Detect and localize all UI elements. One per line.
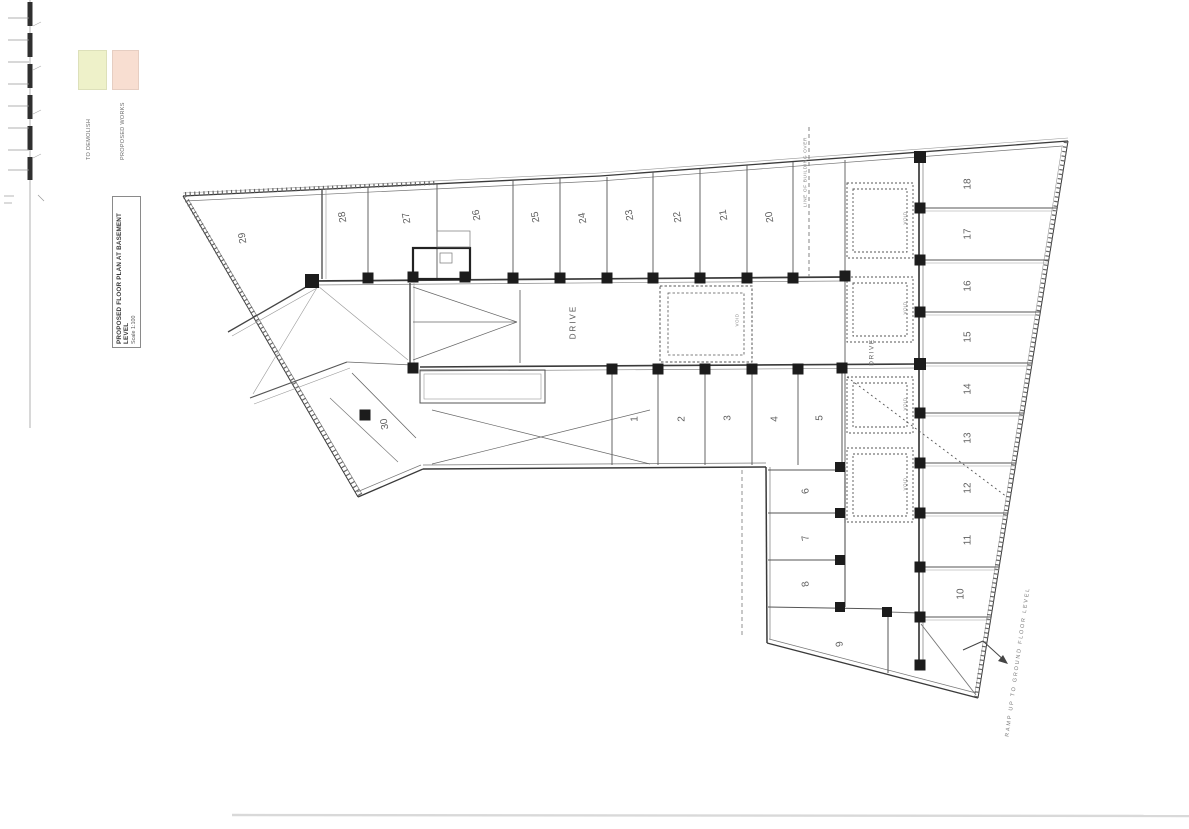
plan-rect <box>853 454 907 516</box>
column <box>840 271 851 282</box>
column <box>648 273 659 284</box>
stall-number-18: 18 <box>963 178 974 190</box>
annotation-text: VOID <box>903 477 908 490</box>
plan-line <box>33 22 41 26</box>
plan-rect <box>437 231 470 247</box>
plan-rect <box>853 189 907 252</box>
stall-number-17: 17 <box>963 228 974 240</box>
stall-number-12: 12 <box>963 482 974 494</box>
plan-line <box>232 815 1189 816</box>
plan-rect <box>853 383 907 427</box>
annotation-text: DRIVE <box>869 338 876 365</box>
column <box>915 660 926 671</box>
stall-number-2: 2 <box>677 416 688 422</box>
plan-line <box>413 287 517 322</box>
plan-line <box>423 467 766 469</box>
plan-line <box>33 110 41 114</box>
stall-number-8: 8 <box>800 580 812 588</box>
column <box>653 364 664 375</box>
column <box>793 364 804 375</box>
column <box>915 562 926 573</box>
plan-rect <box>853 283 907 336</box>
column <box>508 273 519 284</box>
plan-line <box>768 607 888 609</box>
column <box>882 607 892 617</box>
column <box>460 272 471 283</box>
stall-number-28: 28 <box>337 210 350 223</box>
plan-line <box>33 154 41 158</box>
annotation-text: VOID <box>903 301 908 314</box>
drawing-title: PROPOSED FLOOR PLAN AT BASEMENT LEVEL <box>116 198 130 344</box>
plan-line <box>228 283 313 332</box>
stall-number-5: 5 <box>815 415 826 421</box>
plan-line <box>312 277 845 281</box>
column <box>408 272 419 283</box>
plan-line <box>975 147 1062 693</box>
plan-line <box>921 624 976 695</box>
plan-line <box>33 66 41 70</box>
plan-line <box>254 368 350 404</box>
stall-number-30: 30 <box>379 417 392 430</box>
plan-line <box>600 141 1068 176</box>
plan-line <box>253 286 318 394</box>
stall-number-11: 11 <box>963 534 974 545</box>
plan-rect <box>420 370 545 403</box>
column <box>915 307 926 318</box>
plan-line <box>423 463 766 465</box>
legend-label-demolish: TO DEMOLISH <box>86 119 92 160</box>
stall-number-29: 29 <box>237 231 250 244</box>
annotation-text: VOID <box>735 313 740 326</box>
plan-line <box>357 465 421 492</box>
annotation-text: VOID <box>903 397 908 410</box>
column <box>607 364 618 375</box>
column <box>408 363 419 374</box>
column <box>915 508 926 519</box>
column <box>747 364 758 375</box>
plan-line <box>600 138 1068 173</box>
stall-number-1: 1 <box>630 416 641 422</box>
stall-number-13: 13 <box>963 432 974 444</box>
plan-line <box>600 146 1063 181</box>
stall-number-26: 26 <box>471 208 484 221</box>
stall-number-10: 10 <box>956 588 967 600</box>
plan-rect <box>668 293 744 355</box>
column <box>915 203 926 214</box>
stall-number-7: 7 <box>800 534 812 542</box>
plan-rect <box>424 374 541 399</box>
column <box>915 458 926 469</box>
column <box>914 151 926 163</box>
column <box>915 612 926 623</box>
stall-number-15: 15 <box>963 331 974 343</box>
column <box>305 274 319 288</box>
annotation-text: RAMP UP TO GROUND FLOOR LEVEL <box>1005 587 1032 737</box>
column <box>837 363 848 374</box>
column <box>788 273 799 284</box>
stall-number-3: 3 <box>723 415 734 421</box>
plan-line <box>185 183 435 194</box>
stall-number-16: 16 <box>963 280 974 292</box>
plan-line <box>413 322 517 360</box>
drawing-sheet: DRIVEDRIVEVOIDVOIDVOIDVOIDVOIDLINE OF BU… <box>0 0 1189 829</box>
stall-number-4: 4 <box>770 416 781 422</box>
column <box>700 364 711 375</box>
stall-number-25: 25 <box>530 210 543 223</box>
plan-line <box>250 362 347 398</box>
plan-line <box>358 469 423 497</box>
column <box>555 273 566 284</box>
stall-number-24: 24 <box>577 211 590 224</box>
plan-line <box>766 467 767 643</box>
stall-number-23: 23 <box>624 208 637 221</box>
stall-number-22: 22 <box>672 210 685 223</box>
stall-number-6: 6 <box>800 487 812 495</box>
legend-swatch-demolish <box>78 50 107 90</box>
plan-line <box>767 643 978 698</box>
floor-plan: DRIVEDRIVEVOIDVOIDVOIDVOIDVOIDLINE OF BU… <box>0 0 1189 829</box>
plan-line <box>185 197 360 495</box>
column <box>360 410 371 421</box>
column <box>602 273 613 284</box>
column <box>835 602 845 612</box>
plan-line <box>888 612 919 613</box>
stall-number-9: 9 <box>834 640 846 648</box>
column <box>915 255 926 266</box>
plan-line <box>318 286 408 360</box>
column <box>695 273 706 284</box>
drawing-scale: Scale 1:100 <box>131 198 137 344</box>
legend-label-proposed: PROPOSED WORKS <box>120 102 126 160</box>
column <box>363 273 374 284</box>
annotation-text: VOID <box>903 211 908 224</box>
annotation-text: LINE OF BUILDING OVER <box>803 137 809 207</box>
plan-line <box>312 281 845 285</box>
stall-number-14: 14 <box>963 383 974 395</box>
stall-number-20: 20 <box>764 210 777 223</box>
annotation-text: DRIVE <box>569 305 578 339</box>
plan-line <box>847 377 1007 497</box>
drawing-title-block: PROPOSED FLOOR PLAN AT BASEMENT LEVEL Sc… <box>112 196 141 348</box>
plan-line <box>347 362 412 365</box>
column <box>742 273 753 284</box>
plan-line <box>963 641 983 650</box>
column <box>835 462 845 472</box>
stall-number-27: 27 <box>401 211 414 224</box>
stall-number-21: 21 <box>718 208 731 221</box>
column <box>915 408 926 419</box>
plan-line <box>38 195 44 201</box>
legend-swatch-proposed <box>112 50 139 90</box>
plan-line <box>769 639 976 693</box>
column <box>835 555 845 565</box>
column <box>835 508 845 518</box>
column <box>914 358 926 370</box>
plan-rect <box>440 253 452 263</box>
